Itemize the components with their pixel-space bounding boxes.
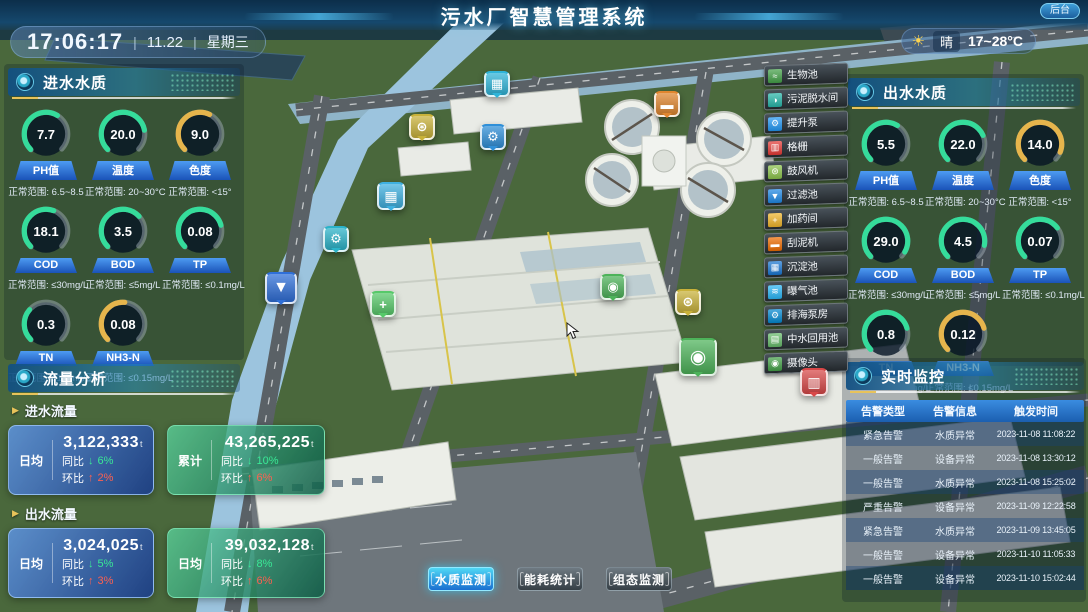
monitor-panel-header: 实时监控 [846, 362, 1084, 390]
alarm-col-header: 告警类型 [846, 403, 920, 419]
clock-weekday: 星期三 [207, 32, 249, 52]
monitor-panel-title: 实时监控 [881, 366, 945, 387]
alarm-row: 一般告警设备异常2023-11-08 13:30:12 [846, 446, 1084, 470]
mouse-cursor [566, 322, 580, 345]
arrow-up-icon: ↑ [88, 575, 94, 587]
legend-chip-提升泵[interactable]: ⚙ 提升泵 [764, 111, 848, 135]
bio-pool-icon: ≈ [768, 68, 782, 82]
gauge-range: 正常范围: 20~30°C [925, 194, 1001, 208]
gauge-value: 29.0 [857, 212, 915, 270]
flow-card: 累计 43,265,225t 同比↓10% 环比↑6% [167, 425, 325, 495]
sea-pump-house-icon: ⚙ [768, 308, 782, 322]
legend-chip-生物池[interactable]: ≈ 生物池 [764, 63, 848, 87]
legend-chip-鼓风机[interactable]: ⊛ 鼓风机 [764, 159, 848, 183]
blower-icon: ⊛ [768, 164, 782, 178]
gauge-value: 9.0 [171, 105, 229, 163]
dots-decoration [1010, 83, 1074, 101]
divider [52, 543, 53, 583]
scraper-marker[interactable]: ▬ [654, 91, 680, 117]
yoy-row: 同比↓8% [221, 556, 314, 572]
backend-button[interactable]: 后台 [1040, 3, 1080, 19]
footer-button-能耗统计[interactable]: 能耗统计 [517, 567, 583, 591]
panel-orb-icon [854, 367, 872, 385]
pump-marker-1[interactable]: ⚙ [480, 124, 506, 150]
sedimentation-pool-icon: ▦ [768, 260, 782, 274]
divider [52, 440, 53, 480]
gauge-value: 22.0 [934, 115, 992, 173]
arrow-down-icon: ↓ [88, 558, 94, 570]
panel-orb-icon [16, 73, 34, 91]
legend-label: 提升泵 [787, 115, 818, 131]
gauge-COD: 29.0 COD 正常范围: ≤30mg/L [848, 212, 924, 301]
gauge-value: 4.5 [934, 212, 992, 270]
outlet-quality-panel: 出水水质 5.5 PH值 正常范围: 6.5~8.5 22.0 温度 正常范围:… [848, 78, 1080, 394]
gauge-label: PH值 [855, 171, 917, 190]
pump-marker-2[interactable]: ⚙ [323, 226, 349, 252]
clock-time: 17:06:17 [27, 29, 123, 55]
gauge-label: PH值 [15, 161, 77, 180]
legend-chip-排海泵房[interactable]: ⚙ 排海泵房 [764, 303, 848, 327]
legend-chip-中水回用池[interactable]: ▤ 中水回用池 [764, 327, 848, 351]
gauge-label: BOD [92, 258, 154, 273]
flow-group-label: ▶出水流量 [12, 504, 340, 523]
legend-chip-加药间[interactable]: + 加药间 [764, 207, 848, 231]
alarm-row: 一般告警设备异常2023-11-10 15:02:44 [846, 566, 1084, 590]
outlet-gauge-grid: 5.5 PH值 正常范围: 6.5~8.5 22.0 温度 正常范围: 20~3… [848, 115, 1080, 394]
gauge-label: TP [169, 258, 231, 273]
legend-label: 排海泵房 [787, 306, 828, 322]
weather-label: 晴 [933, 31, 960, 52]
panel-orb-icon [16, 369, 34, 387]
divider [211, 543, 212, 583]
alarm-row: 紧急告警水质异常2023-11-09 13:45:05 [846, 518, 1084, 542]
gauge-value: 7.7 [17, 105, 75, 163]
outlet-panel-title: 出水水质 [883, 82, 947, 103]
legend-chip-沉淀池[interactable]: ▦ 沉淀池 [764, 255, 848, 279]
legend-label: 格栅 [787, 139, 807, 155]
grille-marker[interactable]: ▥ [800, 368, 828, 396]
gauge-温度: 22.0 温度 正常范围: 20~30°C [925, 115, 1001, 208]
camera-icon: ◉ [768, 356, 782, 370]
gauge-value: 0.08 [94, 295, 152, 353]
blower-marker-1[interactable]: ⊛ [409, 114, 435, 140]
dosing-room-icon: + [768, 212, 782, 226]
arrow-up-icon: ↑ [247, 472, 253, 484]
gauge-label: TP [1009, 268, 1071, 283]
divider [211, 440, 212, 480]
flow-value: 39,032,128t [221, 537, 314, 555]
gauge-色度: 9.0 色度 正常范围: <15° [162, 105, 238, 198]
lift-pump-icon: ⚙ [768, 116, 782, 130]
yoy-row: 同比↓6% [62, 453, 143, 469]
legend-label: 曝气池 [787, 283, 818, 299]
clock: 17:06:17 | 11.22 | 星期三 [10, 26, 266, 58]
gauge-range: 正常范围: ≤0.1mg/L [162, 277, 238, 291]
arrow-icon: ▶ [12, 405, 19, 416]
alarm-row: 一般告警水质异常2023-11-08 15:25:02 [846, 470, 1084, 494]
flow-card: 日均 3,024,025t 同比↓5% 环比↑3% [8, 528, 154, 598]
sun-icon: ☀ [912, 32, 925, 50]
arrow-down-icon: ↓ [247, 558, 253, 570]
camera-marker-1[interactable]: ◉ [600, 274, 626, 300]
legend-label: 刮泥机 [787, 235, 818, 251]
dots-decoration [1014, 367, 1078, 385]
blower-marker-2[interactable]: ⊛ [675, 289, 701, 315]
arrow-down-icon: ↓ [247, 455, 253, 467]
mom-row: 环比↑6% [221, 470, 314, 486]
alarm-row: 一般告警设备异常2023-11-10 11:05:33 [846, 542, 1084, 566]
alarm-col-header: 触发时间 [990, 403, 1082, 419]
footer-button-组态监测[interactable]: 组态监测 [606, 567, 672, 591]
mom-row: 环比↑6% [221, 573, 314, 589]
inlet-panel-header: 进水水质 [8, 68, 240, 96]
gauge-range: 正常范围: ≤5mg/L [85, 277, 161, 291]
gauge-label: COD [15, 258, 77, 273]
flow-groups: ▶进水流量 日均 3,122,333t 同比↓6% 环比↑2% 累计 43,26… [8, 401, 340, 598]
dots-decoration [170, 73, 234, 91]
legend-chip-曝气池[interactable]: ≋ 曝气池 [764, 279, 848, 303]
legend-chip-刮泥机[interactable]: ▬ 刮泥机 [764, 231, 848, 255]
gauge-range: 正常范围: 6.5~8.5 [848, 194, 924, 208]
scraper-icon: ▬ [768, 236, 782, 250]
facility-legend: ≈ 生物池 ◑ 污泥脱水间 ⚙ 提升泵 ▥ 格栅 ⊛ 鼓风机 ▼ 过滤池 + 加… [764, 64, 848, 376]
flow-value: 43,265,225t [221, 434, 314, 452]
arrow-up-icon: ↑ [88, 472, 94, 484]
gauge-value: 0.8 [857, 305, 915, 363]
gauge-range: 正常范围: <15° [1002, 194, 1078, 208]
gauge-range: 正常范围: ≤5mg/L [925, 287, 1001, 301]
flow-stat-label: 日均 [19, 452, 43, 469]
gauge-label: 温度 [92, 161, 154, 180]
gauge-COD: 18.1 COD 正常范围: ≤30mg/L [8, 202, 84, 291]
yoy-row: 同比↓5% [62, 556, 143, 572]
gauge-value: 5.5 [857, 115, 915, 173]
alarm-table: 紧急告警水质异常2023-11-08 11:08:22 一般告警设备异常2023… [846, 422, 1084, 590]
mom-row: 环比↑2% [62, 470, 143, 486]
gauge-TP: 0.08 TP 正常范围: ≤0.1mg/L [162, 202, 238, 291]
gauge-BOD: 4.5 BOD 正常范围: ≤5mg/L [925, 212, 1001, 301]
flow-group-label: ▶进水流量 [12, 401, 340, 420]
alarm-table-header: 告警类型告警信息触发时间 [846, 400, 1084, 422]
gauge-value: 3.5 [94, 202, 152, 260]
panel-orb-icon [856, 83, 874, 101]
gauge-value: 14.0 [1011, 115, 1069, 173]
filter-pool-icon: ▼ [768, 188, 782, 202]
gauge-TP: 0.07 TP 正常范围: ≤0.1mg/L [1002, 212, 1078, 301]
gauge-label: 色度 [1009, 171, 1071, 190]
gauge-PH值: 7.7 PH值 正常范围: 6.5~8.5 [8, 105, 84, 198]
alarm-col-header: 告警信息 [920, 403, 990, 419]
arrow-up-icon: ↑ [247, 575, 253, 587]
arrow-icon: ▶ [12, 508, 19, 519]
gauge-温度: 20.0 温度 正常范围: 20~30°C [85, 105, 161, 198]
gauge-range: 正常范围: 6.5~8.5 [8, 184, 84, 198]
gauge-value: 0.08 [171, 202, 229, 260]
inlet-quality-panel: 进水水质 7.7 PH值 正常范围: 6.5~8.5 20.0 温度 正常范围:… [8, 68, 240, 384]
gauge-label: COD [855, 268, 917, 283]
gauge-色度: 14.0 色度 正常范围: <15° [1002, 115, 1078, 208]
gauge-range: 正常范围: ≤30mg/L [848, 287, 924, 301]
alarm-row: 紧急告警水质异常2023-11-08 11:08:22 [846, 422, 1084, 446]
flow-value: 3,122,333t [62, 434, 143, 452]
mom-row: 环比↑3% [62, 573, 143, 589]
sedimentation-marker[interactable]: ▦ [484, 71, 510, 97]
flow-panel-header: 流量分析 [8, 364, 240, 392]
legend-chip-过滤池[interactable]: ▼ 过滤池 [764, 183, 848, 207]
legend-label: 过滤池 [787, 187, 818, 203]
gauge-value: 18.1 [17, 202, 75, 260]
gauge-BOD: 3.5 BOD 正常范围: ≤5mg/L [85, 202, 161, 291]
flow-stat-label: 累计 [178, 452, 202, 469]
grille-icon: ▥ [768, 140, 782, 154]
alarm-row: 严重告警设备异常2023-11-09 12:22:58 [846, 494, 1084, 518]
legend-label: 鼓风机 [787, 163, 818, 179]
flow-stat-label: 日均 [178, 555, 202, 572]
legend-chip-格栅[interactable]: ▥ 格栅 [764, 135, 848, 159]
camera-marker-2[interactable]: ◉ [679, 338, 717, 376]
legend-label: 污泥脱水间 [787, 90, 838, 107]
flow-stat-label: 日均 [19, 555, 43, 572]
dots-decoration [170, 369, 234, 387]
page-title: 污水厂智慧管理系统 [441, 1, 648, 30]
weather-widget: ☀ 晴 17~28°C [901, 28, 1037, 54]
legend-label: 生物池 [787, 67, 818, 83]
gauge-label: BOD [932, 268, 994, 283]
gauge-label: 色度 [169, 161, 231, 180]
gauge-range: 正常范围: 20~30°C [85, 184, 161, 198]
gauge-value: 20.0 [94, 105, 152, 163]
flow-value: 3,024,025t [62, 537, 143, 555]
realtime-monitor-panel: 实时监控 告警类型告警信息触发时间 紧急告警水质异常2023-11-08 11:… [846, 362, 1084, 590]
divider: | [133, 34, 137, 50]
arrow-down-icon: ↓ [88, 455, 94, 467]
aeration-marker[interactable]: ▦ [377, 182, 405, 210]
flow-card: 日均 3,122,333t 同比↓6% 环比↑2% [8, 425, 154, 495]
legend-label: 沉淀池 [787, 259, 818, 275]
clock-date: 11.22 [147, 34, 183, 51]
legend-chip-污泥脱水间[interactable]: ◑ 污泥脱水间 [764, 87, 848, 111]
dashboard: 污水厂智慧管理系统 后台 17:06:17 | 11.22 | 星期三 ☀ 晴 … [0, 0, 1088, 612]
sludge-dewatering-icon: ◑ [768, 92, 782, 106]
flow-analysis-panel: 流量分析 ▶进水流量 日均 3,122,333t 同比↓6% 环比↑2% 累计 … [8, 364, 340, 598]
divider: | [193, 34, 197, 50]
footer-tab-bar: 水质监测 能耗统计 组态监测 [428, 567, 672, 591]
filter-marker[interactable]: ▼ [265, 272, 297, 304]
inlet-gauge-grid: 7.7 PH值 正常范围: 6.5~8.5 20.0 温度 正常范围: 20~3… [8, 105, 240, 384]
water-reuse-pool-icon: ▤ [768, 332, 782, 346]
inlet-panel-title: 进水水质 [43, 72, 107, 93]
gauge-range: 正常范围: ≤0.1mg/L [1002, 287, 1078, 301]
gauge-value: 0.12 [934, 305, 992, 363]
legend-label: 中水回用池 [787, 330, 838, 347]
gauge-label: 温度 [932, 171, 994, 190]
gauge-PH值: 5.5 PH值 正常范围: 6.5~8.5 [848, 115, 924, 208]
aeration-pool-icon: ≋ [768, 284, 782, 298]
footer-button-水质监测[interactable]: 水质监测 [428, 567, 494, 591]
gauge-value: 0.07 [1011, 212, 1069, 270]
gauge-range: 正常范围: <15° [162, 184, 238, 198]
weather-temp-range: 17~28°C [968, 33, 1031, 49]
flow-card: 日均 39,032,128t 同比↓8% 环比↑6% [167, 528, 325, 598]
gauge-range: 正常范围: ≤30mg/L [8, 277, 84, 291]
yoy-row: 同比↓10% [221, 453, 314, 469]
flow-panel-title: 流量分析 [43, 368, 107, 389]
outlet-panel-header: 出水水质 [848, 78, 1080, 106]
dosing-marker[interactable]: + [370, 291, 396, 317]
legend-label: 加药间 [787, 211, 818, 227]
gauge-value: 0.3 [17, 295, 75, 353]
